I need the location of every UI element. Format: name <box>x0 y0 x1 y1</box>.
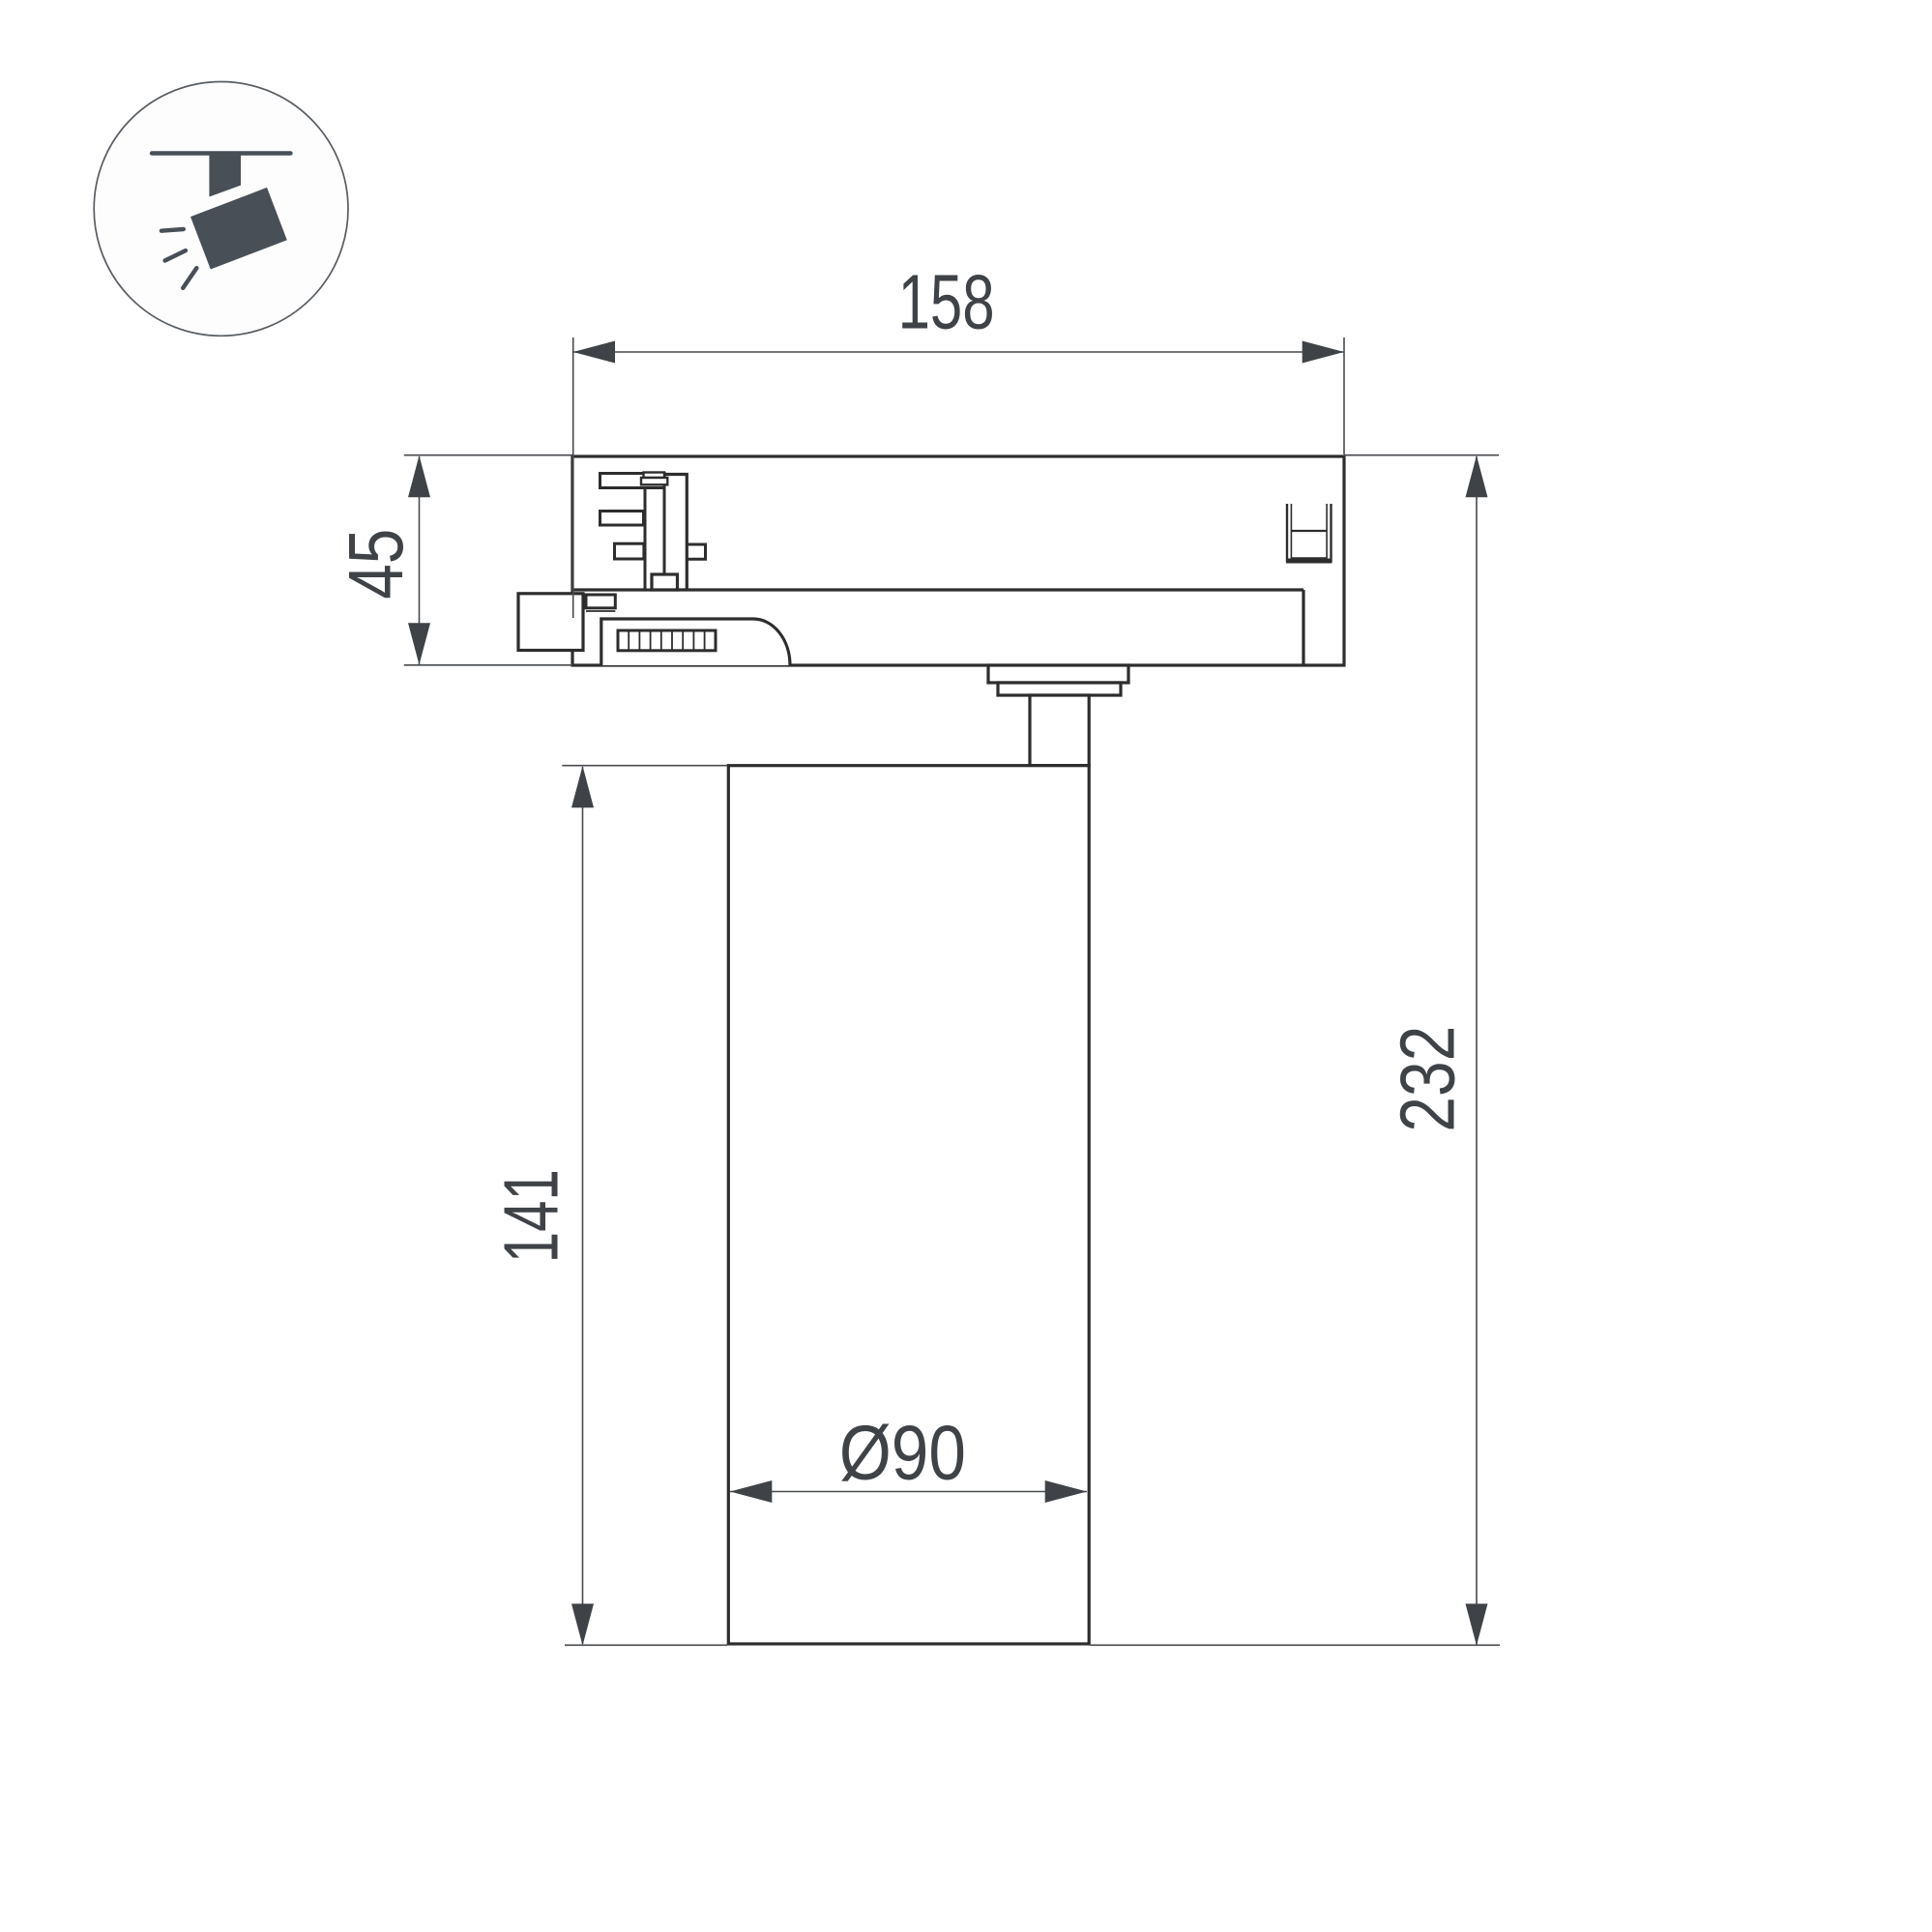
svg-text:158: 158 <box>898 259 995 345</box>
svg-text:Ø90: Ø90 <box>839 1410 966 1496</box>
svg-text:45: 45 <box>333 529 419 600</box>
svg-text:141: 141 <box>487 1169 573 1263</box>
svg-text:232: 232 <box>1384 1026 1470 1132</box>
